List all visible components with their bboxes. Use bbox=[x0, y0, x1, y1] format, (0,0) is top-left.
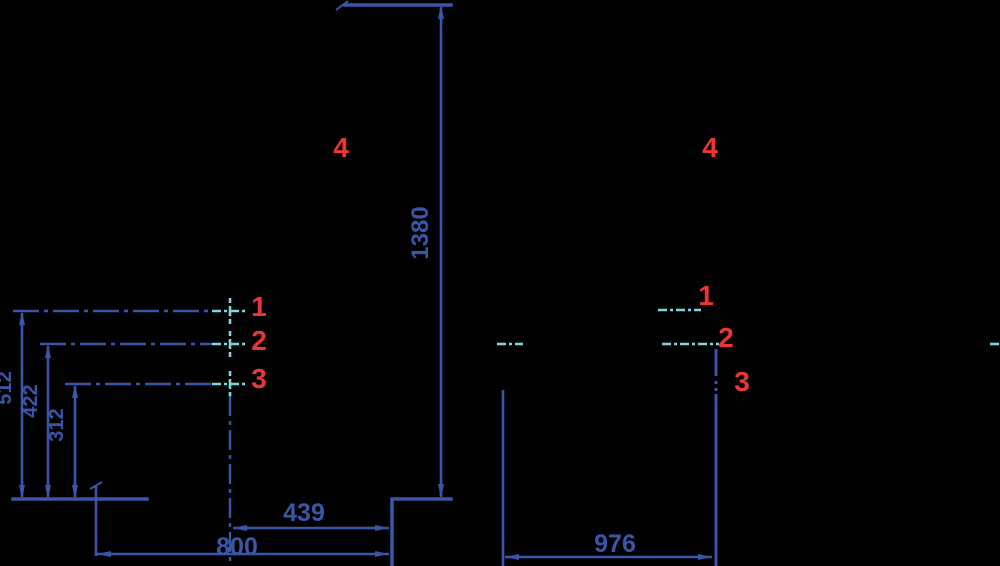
arrow-left-icon bbox=[505, 554, 519, 560]
dim-step-width-label: 439 bbox=[283, 499, 325, 527]
centerline-pos1 bbox=[13, 298, 246, 324]
object-step-outline bbox=[392, 499, 451, 566]
arrow-up-icon bbox=[19, 311, 25, 325]
dim-pos3-label: 312 bbox=[46, 408, 68, 441]
marker-pos1: 1 bbox=[698, 280, 714, 311]
arrow-up-icon bbox=[45, 344, 51, 358]
dim-pos2-label: 422 bbox=[20, 384, 42, 417]
dim-total-width: 800 bbox=[97, 533, 389, 561]
front-view: 1380 512 422 bbox=[0, 1, 451, 566]
arrow-right-icon bbox=[375, 551, 389, 557]
arrow-down-icon bbox=[19, 485, 25, 499]
marker-pos3: 3 bbox=[251, 363, 267, 394]
arrow-down-icon bbox=[45, 485, 51, 499]
arrow-left-icon bbox=[233, 525, 247, 531]
arrow-left-icon bbox=[97, 551, 111, 557]
arrow-down-icon bbox=[438, 484, 444, 498]
dim-total-height-label: 1380 bbox=[407, 206, 434, 259]
marker-pos4: 4 bbox=[702, 132, 718, 163]
marker-pos2: 2 bbox=[251, 325, 267, 356]
marker-pos4: 4 bbox=[333, 132, 349, 163]
dim-step-width: 439 bbox=[233, 499, 389, 531]
dim-depth: 976 bbox=[505, 530, 712, 560]
arrow-right-icon bbox=[698, 554, 712, 560]
dim-total-height: 1380 bbox=[407, 5, 444, 498]
dim-pos3-height: 312 bbox=[46, 384, 78, 499]
arrow-down-icon bbox=[72, 485, 78, 499]
centerline-pos2 bbox=[40, 331, 246, 357]
marker-pos2: 2 bbox=[718, 322, 734, 353]
marker-pos3: 3 bbox=[734, 366, 750, 397]
arrow-right-icon bbox=[375, 525, 389, 531]
centerline-pos3 bbox=[65, 371, 246, 397]
marker-pos1: 1 bbox=[251, 291, 267, 322]
drawing-svg: 1380 512 422 bbox=[0, 0, 1000, 566]
technical-drawing-canvas: 1380 512 422 bbox=[0, 0, 1000, 566]
dim-pos1-label: 512 bbox=[0, 371, 16, 404]
side-view: 976 4 1 2 3 bbox=[497, 132, 1000, 566]
dim-total-width-label: 800 bbox=[216, 533, 258, 561]
arrow-up-icon bbox=[438, 5, 444, 19]
arrow-up-icon bbox=[72, 384, 78, 398]
dim-depth-label: 976 bbox=[594, 530, 636, 558]
